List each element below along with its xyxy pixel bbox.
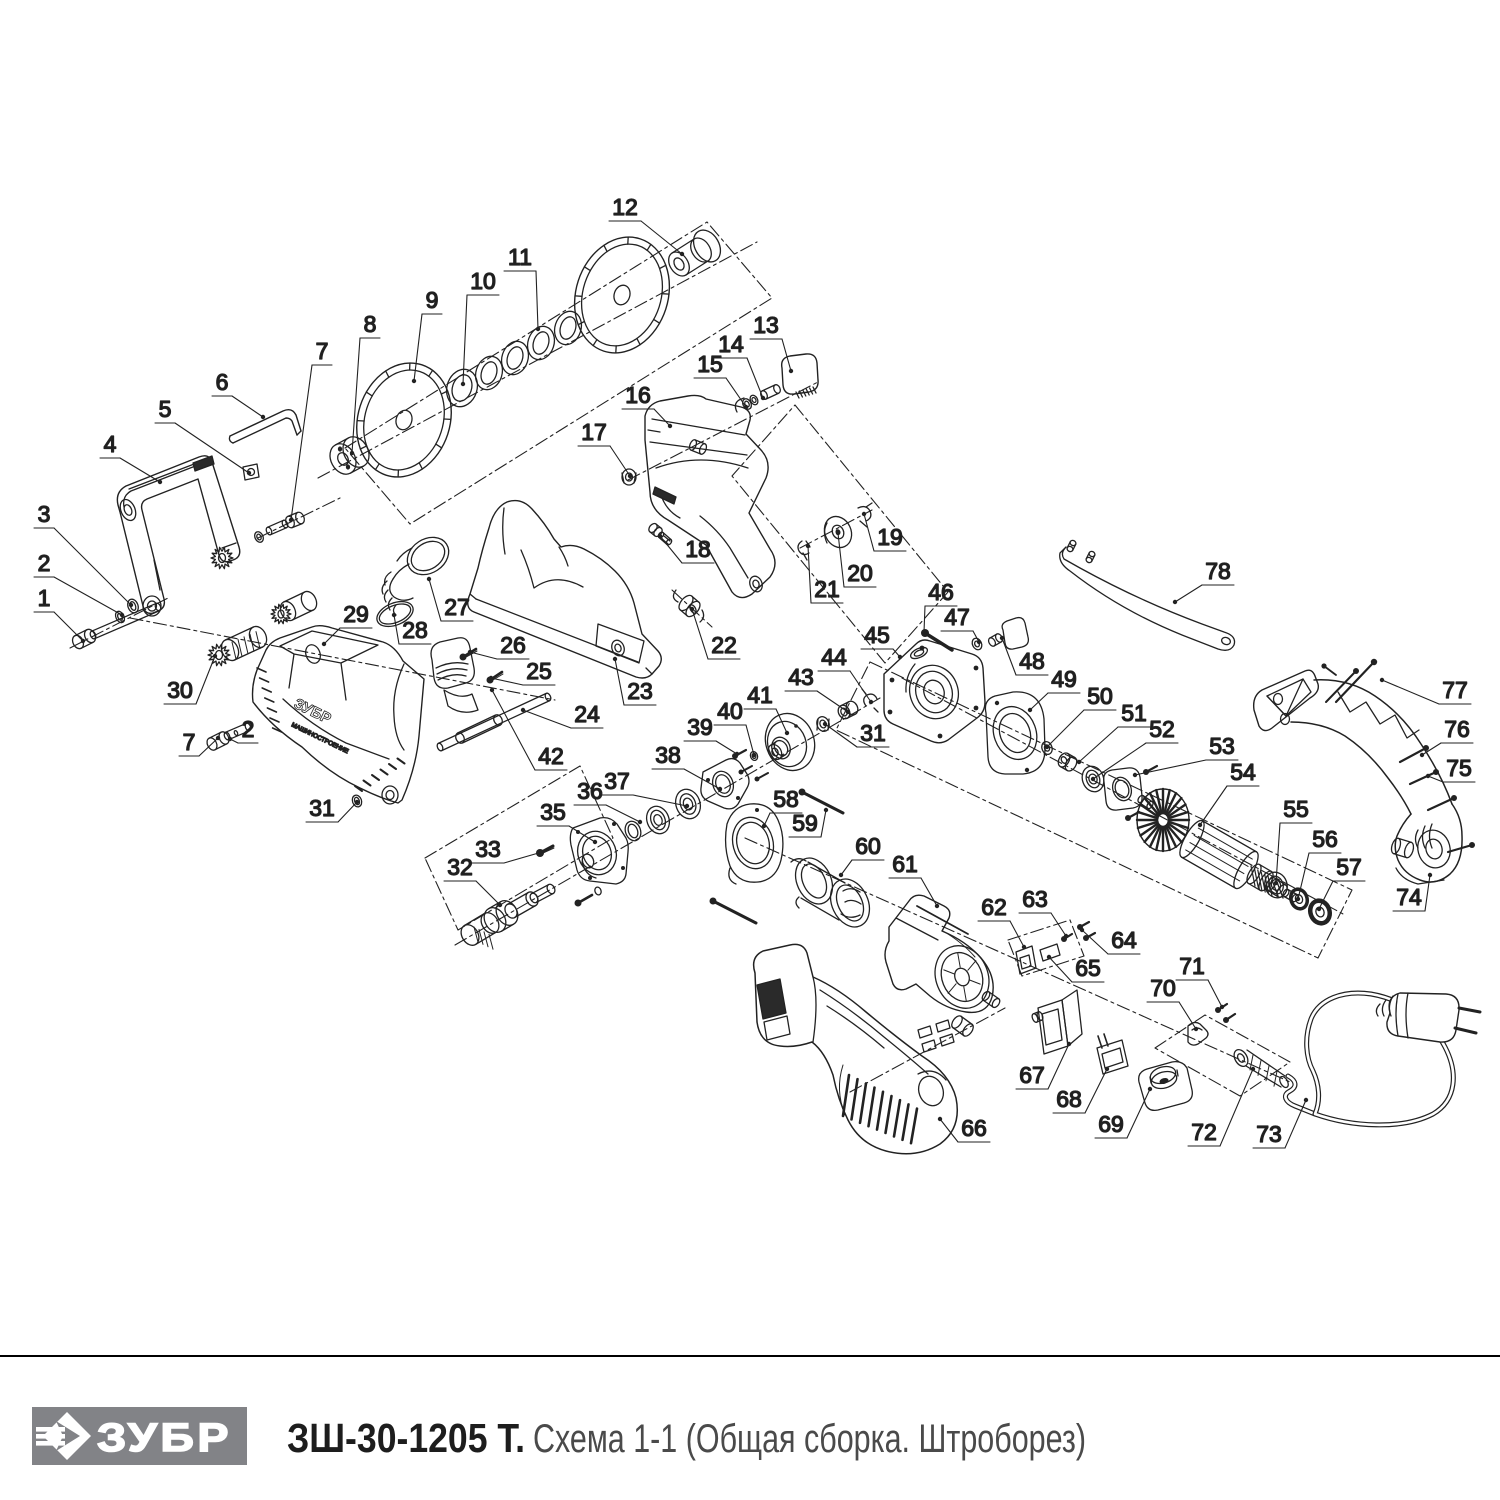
svg-text:ЗУБР: ЗУБР (97, 1416, 232, 1460)
svg-text:33: 33 (475, 836, 501, 862)
svg-text:12: 12 (612, 194, 638, 220)
svg-text:18: 18 (685, 536, 711, 562)
svg-text:20: 20 (847, 560, 873, 586)
svg-text:72: 72 (1191, 1119, 1217, 1145)
svg-text:46: 46 (928, 579, 954, 605)
svg-text:68: 68 (1056, 1086, 1082, 1112)
svg-text:8: 8 (364, 311, 377, 337)
svg-text:13: 13 (753, 312, 779, 338)
svg-text:28: 28 (402, 617, 428, 643)
svg-text:66: 66 (961, 1115, 987, 1141)
svg-text:2: 2 (38, 550, 51, 576)
svg-text:21: 21 (814, 576, 840, 602)
svg-text:ЗШ-30-1205 Т.: ЗШ-30-1205 Т. (287, 1415, 525, 1461)
svg-text:44: 44 (821, 644, 847, 670)
svg-text:53: 53 (1209, 733, 1235, 759)
svg-text:3: 3 (38, 501, 51, 527)
svg-text:10: 10 (470, 268, 496, 294)
svg-text:63: 63 (1022, 886, 1048, 912)
svg-text:56: 56 (1312, 826, 1338, 852)
svg-text:1: 1 (38, 585, 51, 611)
svg-text:73: 73 (1256, 1121, 1282, 1147)
svg-text:39: 39 (687, 714, 713, 740)
svg-text:9: 9 (426, 287, 439, 313)
svg-text:76: 76 (1444, 716, 1470, 742)
svg-text:50: 50 (1087, 683, 1113, 709)
svg-text:40: 40 (717, 698, 743, 724)
svg-text:74: 74 (1396, 884, 1422, 910)
svg-text:75: 75 (1446, 755, 1472, 781)
svg-text:32: 32 (447, 854, 473, 880)
svg-text:70: 70 (1150, 975, 1176, 1001)
svg-text:24: 24 (574, 701, 600, 727)
svg-text:43: 43 (788, 664, 814, 690)
svg-text:6: 6 (216, 369, 229, 395)
svg-text:29: 29 (343, 601, 369, 627)
svg-text:15: 15 (697, 351, 723, 377)
svg-text:71: 71 (1179, 953, 1205, 979)
svg-text:17: 17 (581, 419, 607, 445)
svg-text:59: 59 (792, 810, 818, 836)
svg-text:25: 25 (526, 658, 552, 684)
svg-text:67: 67 (1019, 1062, 1045, 1088)
svg-text:36: 36 (577, 778, 603, 804)
svg-text:7: 7 (316, 338, 329, 364)
svg-text:35: 35 (540, 799, 566, 825)
svg-text:2: 2 (242, 716, 255, 742)
svg-text:23: 23 (627, 678, 653, 704)
svg-text:47: 47 (944, 604, 970, 630)
svg-text:61: 61 (892, 851, 918, 877)
svg-text:26: 26 (500, 632, 526, 658)
svg-text:42: 42 (538, 743, 564, 769)
svg-text:4: 4 (104, 431, 117, 457)
svg-text:60: 60 (855, 833, 881, 859)
svg-text:62: 62 (981, 894, 1007, 920)
svg-text:38: 38 (655, 742, 681, 768)
svg-text:49: 49 (1051, 666, 1077, 692)
svg-text:Схема 1-1 (Общая сборка. Штроб: Схема 1-1 (Общая сборка. Штроборез) (533, 1417, 1086, 1461)
svg-text:54: 54 (1230, 759, 1256, 785)
svg-text:69: 69 (1098, 1111, 1124, 1137)
svg-text:64: 64 (1111, 927, 1137, 953)
svg-text:57: 57 (1336, 854, 1362, 880)
svg-text:65: 65 (1075, 955, 1101, 981)
svg-text:45: 45 (864, 622, 890, 648)
svg-text:30: 30 (167, 677, 193, 703)
svg-text:41: 41 (747, 682, 773, 708)
svg-text:16: 16 (625, 382, 651, 408)
svg-text:5: 5 (159, 396, 172, 422)
svg-text:37: 37 (604, 768, 630, 794)
svg-text:77: 77 (1442, 677, 1468, 703)
svg-text:51: 51 (1121, 700, 1147, 726)
svg-text:55: 55 (1283, 796, 1309, 822)
svg-text:58: 58 (773, 786, 799, 812)
svg-text:52: 52 (1149, 716, 1175, 742)
svg-text:7: 7 (183, 729, 196, 755)
svg-text:31: 31 (860, 720, 886, 746)
svg-text:48: 48 (1019, 648, 1045, 674)
svg-text:19: 19 (877, 524, 903, 550)
svg-text:22: 22 (711, 632, 737, 658)
svg-text:31: 31 (309, 795, 335, 821)
svg-text:27: 27 (444, 594, 470, 620)
svg-text:78: 78 (1205, 558, 1231, 584)
svg-text:11: 11 (508, 244, 532, 270)
